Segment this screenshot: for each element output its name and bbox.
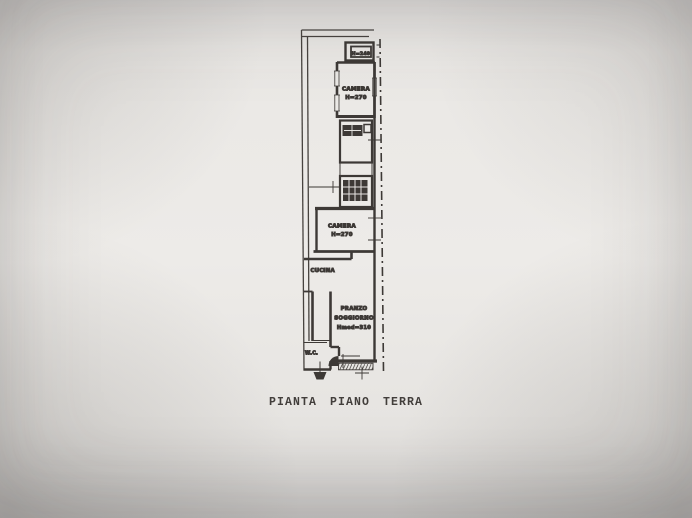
room-cucina: CUCINA <box>304 252 352 275</box>
property-dashed-line <box>380 39 384 372</box>
camera-1-name: CAMERA <box>342 87 370 93</box>
room-bath-b <box>340 176 372 207</box>
camera-2-height: H=270 <box>331 232 353 238</box>
pranzo-line2: SOGGIORNO <box>334 316 374 322</box>
plan-title: PIANTA PIANO TERRA <box>234 396 458 409</box>
closet-height-label: H=240 <box>352 51 371 57</box>
floor-plan-drawing: H=240 CAMERA H=270 <box>0 0 692 518</box>
wc-name: W.C. <box>305 351 318 357</box>
room-closet-top: H=240 <box>346 43 380 61</box>
room-camera-1: CAMERA H=270 <box>334 62 377 118</box>
room-bath-a <box>340 121 372 177</box>
pranzo-line3: Hmed=310 <box>337 325 371 331</box>
camera-2-name: CAMERA <box>328 224 356 230</box>
corridor-walls <box>304 292 331 348</box>
scanned-page: H=240 CAMERA H=270 <box>0 0 692 518</box>
pranzo-line1: PRANZO <box>341 306 368 312</box>
floor-plan: H=240 CAMERA H=270 <box>0 0 692 518</box>
room-camera-2: CAMERA H=270 <box>314 208 375 252</box>
cucina-name: CUCINA <box>311 268 336 274</box>
camera-1-height: H=270 <box>345 95 367 101</box>
